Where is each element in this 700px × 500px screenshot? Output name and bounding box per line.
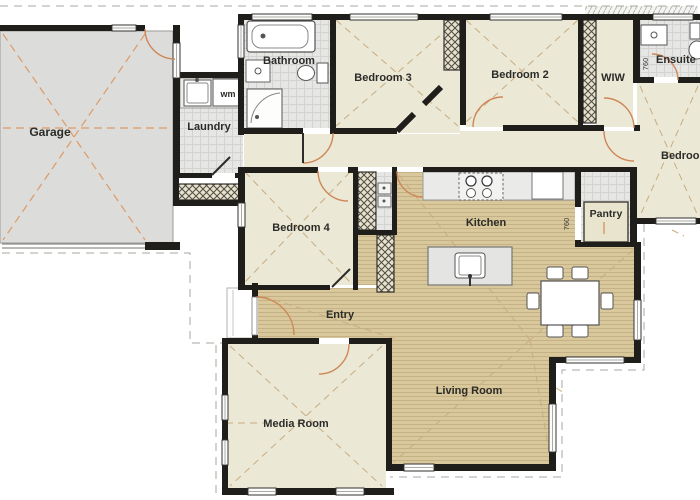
window — [490, 14, 562, 20]
window — [222, 395, 228, 420]
cooktop-fixture — [459, 173, 503, 200]
window — [653, 14, 693, 20]
ensuite-vanity-fixture — [641, 25, 667, 45]
floor-plan-page: wm — [0, 0, 700, 500]
floor-plan: wm — [0, 0, 700, 500]
bedroom3-wardrobe-hatch — [444, 20, 460, 70]
pantry-label: Pantry — [590, 208, 623, 220]
window — [566, 357, 624, 363]
bathtub-fixture — [247, 21, 315, 52]
window — [634, 300, 641, 340]
wiw-label: WIW — [601, 72, 625, 84]
linen-cupboard-hatch — [178, 184, 240, 200]
hall-floor — [244, 134, 460, 167]
bedroom4-label: Bedroom 4 — [272, 222, 330, 234]
living-floor — [392, 357, 549, 464]
bedroom3-label: Bedroom 3 — [354, 72, 411, 84]
garage-door — [2, 244, 145, 248]
window — [336, 488, 364, 495]
garage-floor — [0, 31, 173, 243]
window — [238, 203, 245, 227]
coat-cupboard-hatch — [377, 235, 394, 292]
master-bedroom-label: Bedroom — [661, 150, 700, 162]
entry-floor-nook — [358, 235, 377, 285]
entry-label: Entry — [326, 309, 355, 321]
wiw-shelving-hatch — [583, 20, 596, 123]
kitchen-label: Kitchen — [466, 217, 507, 229]
kitchen-island-fixture — [428, 247, 512, 286]
laundry-label: Laundry — [187, 121, 231, 133]
front-door-leaf — [252, 297, 257, 335]
window — [248, 488, 276, 495]
window — [350, 14, 418, 20]
shower-fixture — [247, 89, 282, 128]
window — [238, 25, 244, 58]
window — [173, 43, 180, 78]
window — [112, 25, 136, 31]
bathroom-label: Bathroom — [263, 55, 315, 67]
entry-floor-sliver — [392, 338, 397, 357]
living-room-label: Living Room — [436, 385, 503, 397]
window — [252, 14, 312, 20]
hot-water-cupboard-hatch — [358, 172, 376, 230]
bedroom3-door-pocket — [397, 85, 460, 133]
window — [656, 218, 696, 224]
garage-label: Garage — [29, 125, 71, 139]
window — [404, 464, 434, 471]
ensuite-door-dimension: 760 — [641, 58, 650, 71]
pantry-door-dimension: 760 — [562, 218, 571, 231]
window — [222, 440, 228, 465]
media-room-label: Media Room — [263, 418, 329, 430]
laundry-tub-fixture — [184, 78, 211, 106]
ensuite-label: Ensuite — [656, 54, 696, 66]
washing-machine-label: wm — [219, 89, 235, 99]
kitchen-sink-bench — [532, 172, 563, 199]
bedroom2-label: Bedroom 2 — [491, 69, 548, 81]
window — [549, 404, 556, 452]
